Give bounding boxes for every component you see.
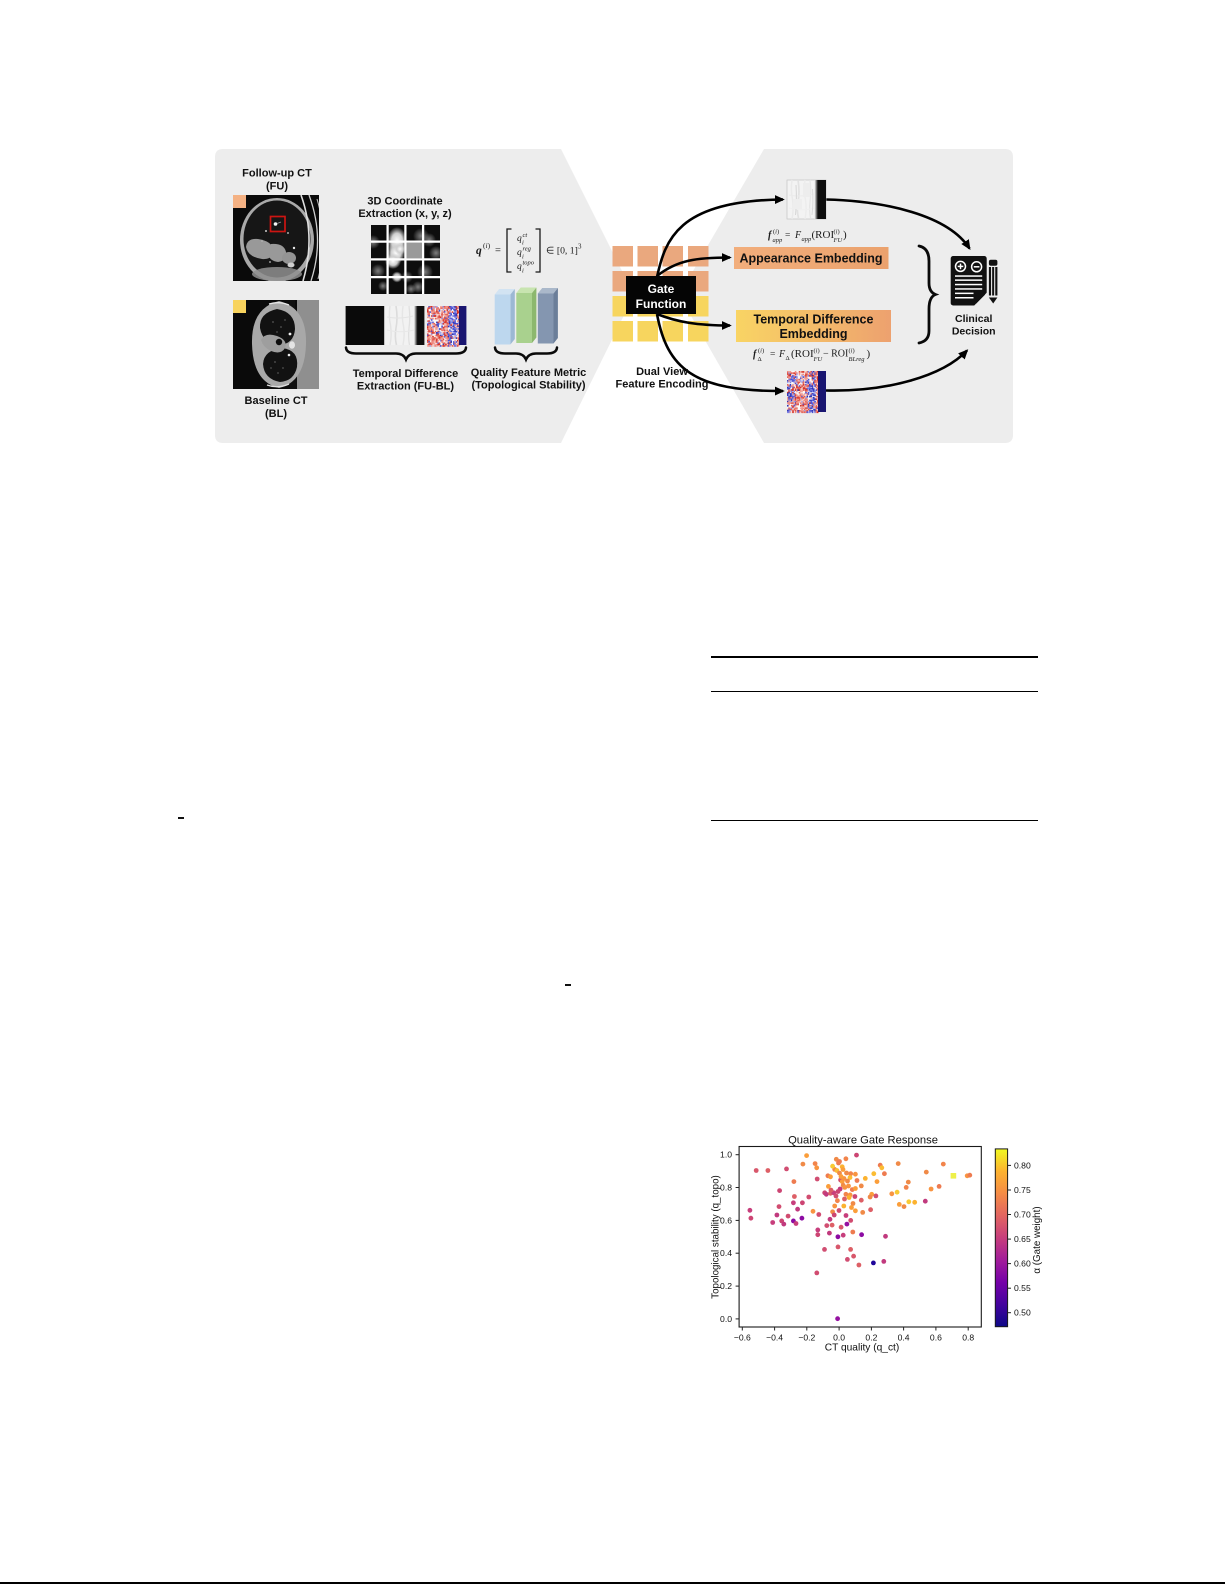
svg-text:Follow-up CT: Follow-up CT: [242, 168, 312, 180]
svg-text:(i): (i): [483, 241, 491, 250]
svg-text:0.55: 0.55: [1014, 1283, 1031, 1293]
svg-text:Feature Encoding: Feature Encoding: [616, 379, 709, 391]
svg-text:): ): [843, 229, 847, 241]
svg-text:Extraction (FU-BL): Extraction (FU-BL): [357, 381, 455, 393]
svg-text:Appearance Embedding: Appearance Embedding: [739, 252, 882, 266]
svg-text:Extraction (x, y, z): Extraction (x, y, z): [358, 208, 452, 220]
svg-text:0.80: 0.80: [1014, 1160, 1031, 1170]
svg-text:(Topological Stability): (Topological Stability): [471, 380, 585, 392]
svg-text:∈ [0, 1]: ∈ [0, 1]: [546, 246, 578, 257]
svg-text:0.2: 0.2: [865, 1333, 877, 1343]
svg-text:(BL): (BL): [265, 408, 287, 420]
svg-text:(i): (i): [758, 348, 764, 355]
svg-text:−0.2: −0.2: [798, 1333, 815, 1343]
svg-text:BLreg: BLreg: [849, 356, 866, 363]
svg-text:Gate: Gate: [648, 282, 675, 296]
svg-text:0.4: 0.4: [720, 1248, 732, 1258]
svg-text:Decision: Decision: [952, 326, 996, 338]
svg-text:0.8: 0.8: [962, 1333, 974, 1343]
svg-text:Δ: Δ: [758, 356, 762, 363]
svg-text:=: =: [495, 246, 501, 257]
svg-text:q: q: [476, 245, 482, 257]
svg-text:app: app: [802, 236, 813, 243]
svg-text:reg: reg: [523, 246, 532, 253]
svg-text:3D Coordinate: 3D Coordinate: [367, 196, 442, 208]
svg-text:Clinical: Clinical: [955, 313, 992, 325]
svg-text:α (Gate weight): α (Gate weight): [1032, 1206, 1043, 1273]
svg-text:1.0: 1.0: [720, 1150, 732, 1160]
svg-text:Topological stability (q_topo): Topological stability (q_topo): [711, 1175, 722, 1299]
svg-text:Quality Feature Metric: Quality Feature Metric: [471, 367, 587, 379]
svg-text:(i): (i): [814, 348, 820, 355]
svg-text:Embedding: Embedding: [779, 327, 847, 341]
svg-text:Function: Function: [636, 297, 687, 311]
svg-text:FU: FU: [833, 237, 844, 244]
svg-text:0.50: 0.50: [1014, 1308, 1031, 1318]
svg-text:0.70: 0.70: [1014, 1210, 1031, 1220]
svg-text:0.60: 0.60: [1014, 1259, 1031, 1269]
svg-text:(i): (i): [773, 229, 779, 236]
svg-text:CT quality (q_ct): CT quality (q_ct): [825, 1343, 900, 1354]
svg-text:3: 3: [578, 243, 582, 251]
svg-text:FU: FU: [813, 356, 824, 363]
svg-text:0.6: 0.6: [720, 1215, 732, 1225]
svg-text:0.2: 0.2: [720, 1281, 732, 1291]
svg-text:Dual View: Dual View: [636, 366, 688, 378]
svg-text:0.4: 0.4: [898, 1333, 910, 1343]
svg-text:(FU): (FU): [266, 181, 288, 193]
svg-text:i: i: [522, 268, 524, 275]
svg-text:): ): [867, 348, 871, 360]
svg-text:0.6: 0.6: [930, 1333, 942, 1343]
svg-text:0.8: 0.8: [720, 1183, 732, 1193]
svg-text:app: app: [773, 237, 784, 244]
svg-text:(i): (i): [849, 348, 855, 355]
svg-text:Temporal Difference: Temporal Difference: [754, 313, 874, 327]
svg-text:topo: topo: [523, 260, 535, 267]
svg-text:−0.4: −0.4: [766, 1333, 783, 1343]
svg-text:0.65: 0.65: [1014, 1234, 1031, 1244]
svg-text:Δ: Δ: [786, 355, 790, 362]
svg-text:Quality-aware Gate Response: Quality-aware Gate Response: [788, 1135, 938, 1147]
svg-text:− ROI: − ROI: [823, 349, 848, 360]
svg-text:=: =: [770, 350, 775, 360]
svg-text:−0.6: −0.6: [734, 1333, 751, 1343]
svg-text:(ROI: (ROI: [812, 229, 835, 241]
svg-text:(ROI: (ROI: [791, 348, 814, 360]
svg-text:Baseline CT: Baseline CT: [245, 395, 308, 407]
svg-text:=: =: [785, 231, 790, 241]
svg-text:0.75: 0.75: [1014, 1185, 1031, 1195]
svg-text:0.0: 0.0: [833, 1333, 845, 1343]
svg-text:ct: ct: [523, 232, 528, 239]
svg-text:Temporal Difference: Temporal Difference: [353, 368, 459, 380]
svg-text:0.0: 0.0: [720, 1314, 732, 1324]
svg-text:(i): (i): [834, 229, 840, 236]
